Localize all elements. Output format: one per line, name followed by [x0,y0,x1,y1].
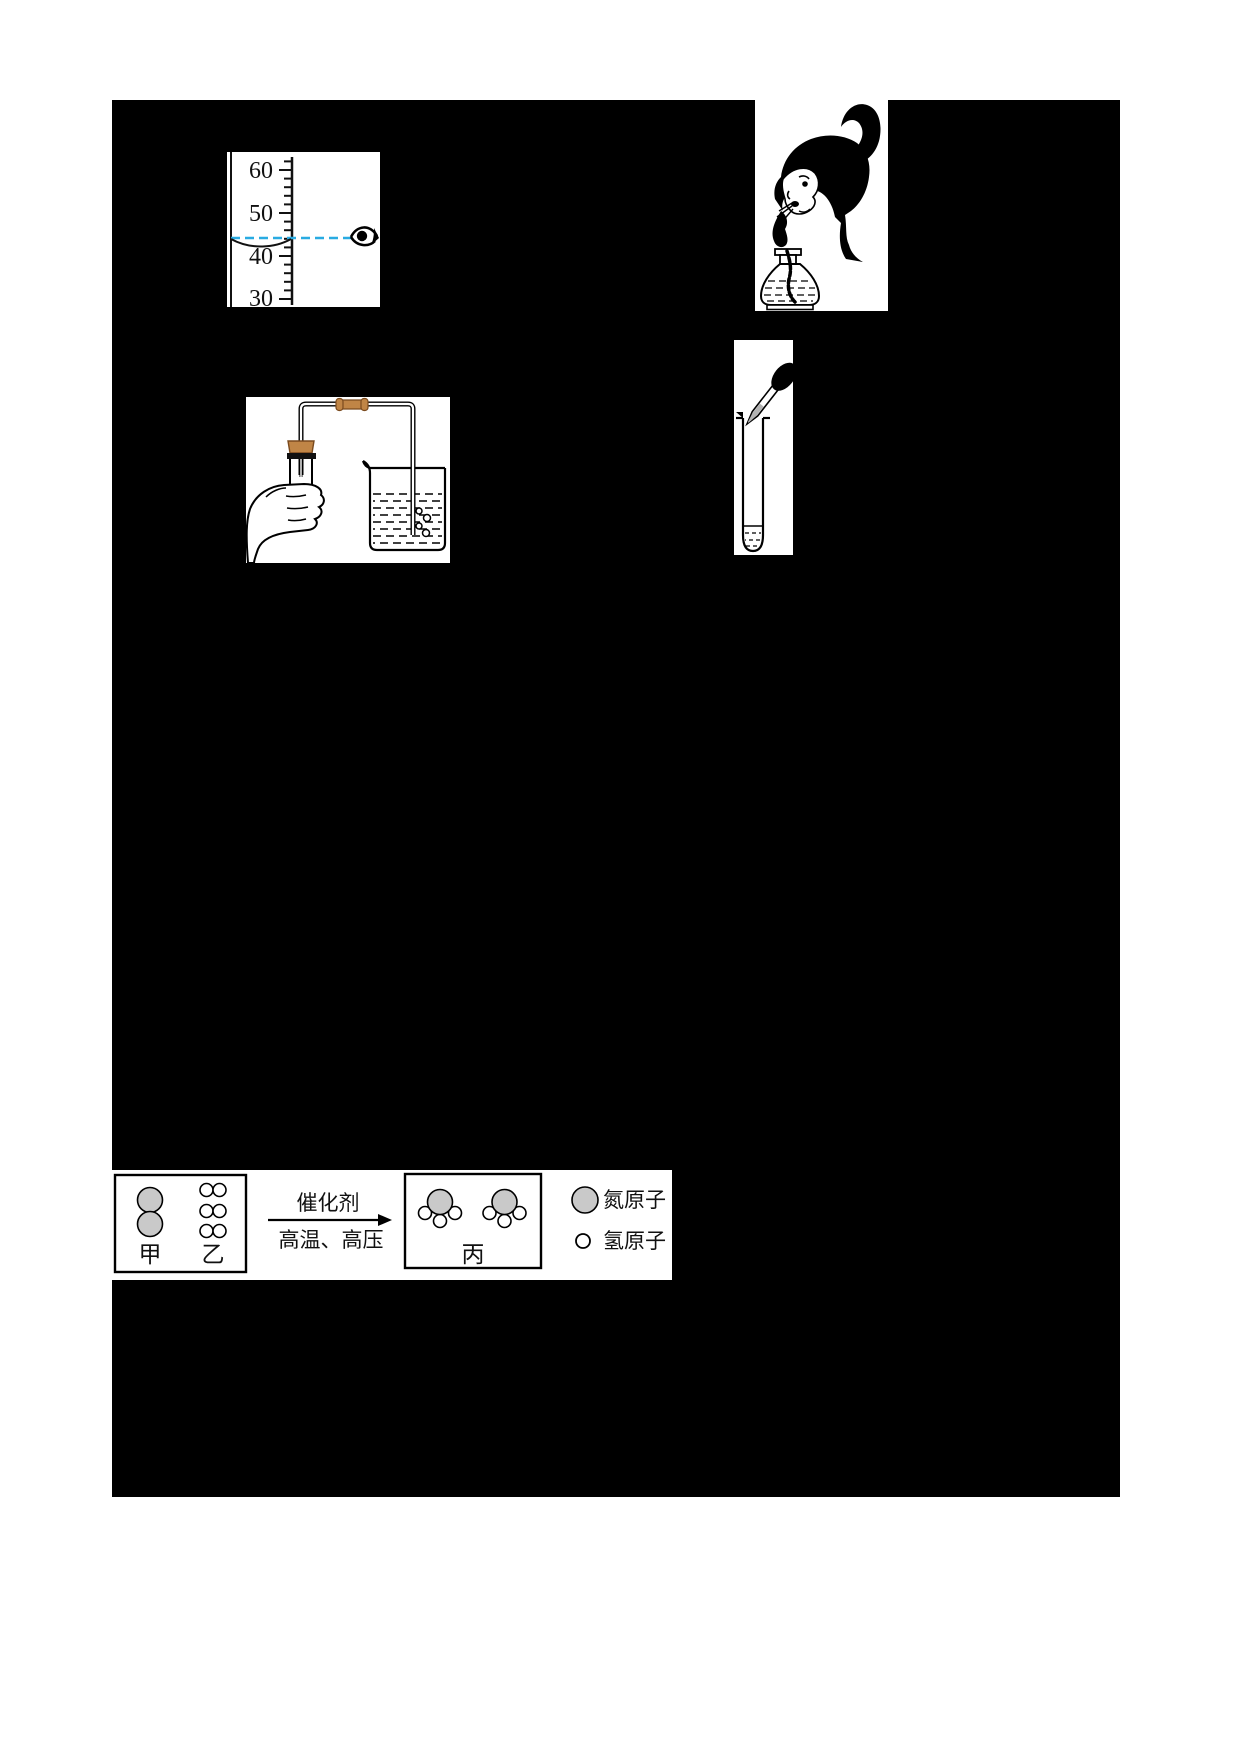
girl-head [774,104,880,262]
tick-label-60: 60 [249,158,273,184]
hydrogen-molecules [200,1184,226,1238]
cylinder-scale-labels: 60 50 40 30 [249,158,273,307]
tube-liquid [743,526,763,546]
flame [773,211,788,247]
airtightness-drawing [246,397,450,563]
eye [802,181,808,187]
figure-ammonia-synthesis-diagram: 甲 乙 催化剂 高温、高压 丙 [112,1170,672,1280]
tick-label-40: 40 [249,244,273,270]
beaker-water-lines [373,494,442,543]
legend-hydrogen-atom [576,1234,590,1248]
beaker [363,461,445,550]
dropper [739,358,793,430]
tick-label-30: 30 [249,286,273,307]
reaction-arrow: 催化剂 高温、高压 [268,1191,392,1252]
redacted-text-block [112,100,1120,1497]
hand [247,484,324,563]
cylinder-scale-ticks [279,161,292,299]
tick-label-50: 50 [249,201,273,227]
conditions-label: 高温、高压 [279,1228,384,1252]
catalyst-label: 催化剂 [297,1191,360,1215]
reactant2-label: 乙 [202,1242,225,1267]
alcohol-lamp [761,211,819,310]
dropper-liquid [746,404,763,424]
legend-hydrogen-label: 氢原子 [603,1229,666,1253]
rubber-connector [336,399,368,411]
eye-icon [351,227,379,245]
face [782,168,818,214]
legend-nitrogen-atom [572,1187,598,1213]
figure-airtightness-check [246,397,450,563]
reactant1-label: 甲 [139,1242,162,1267]
dropper-test-tube-drawing [734,340,793,555]
cylinder-reading-drawing: 60 50 40 30 [227,152,380,307]
figure-girl-blowing-lamp [755,99,888,311]
ammonia-diagram-drawing: 甲 乙 催化剂 高温、高压 丙 [112,1170,672,1280]
figure-dropper-test-tube [734,340,793,555]
arrowhead [378,1214,392,1226]
product-label: 丙 [462,1242,485,1267]
figure-cylinder-reading: 60 50 40 30 [227,152,380,307]
legend: 氮原子 氢原子 [572,1187,666,1253]
rubber-stopper [288,441,314,453]
lamp-base [767,305,813,310]
legend-nitrogen-label: 氮原子 [603,1188,666,1212]
exam-page: 60 50 40 30 [0,0,1240,1754]
mouth-blowing [791,201,799,207]
test-tube [736,412,770,551]
tube-lip [287,453,316,459]
girl-blowing-lamp-drawing [755,99,888,311]
